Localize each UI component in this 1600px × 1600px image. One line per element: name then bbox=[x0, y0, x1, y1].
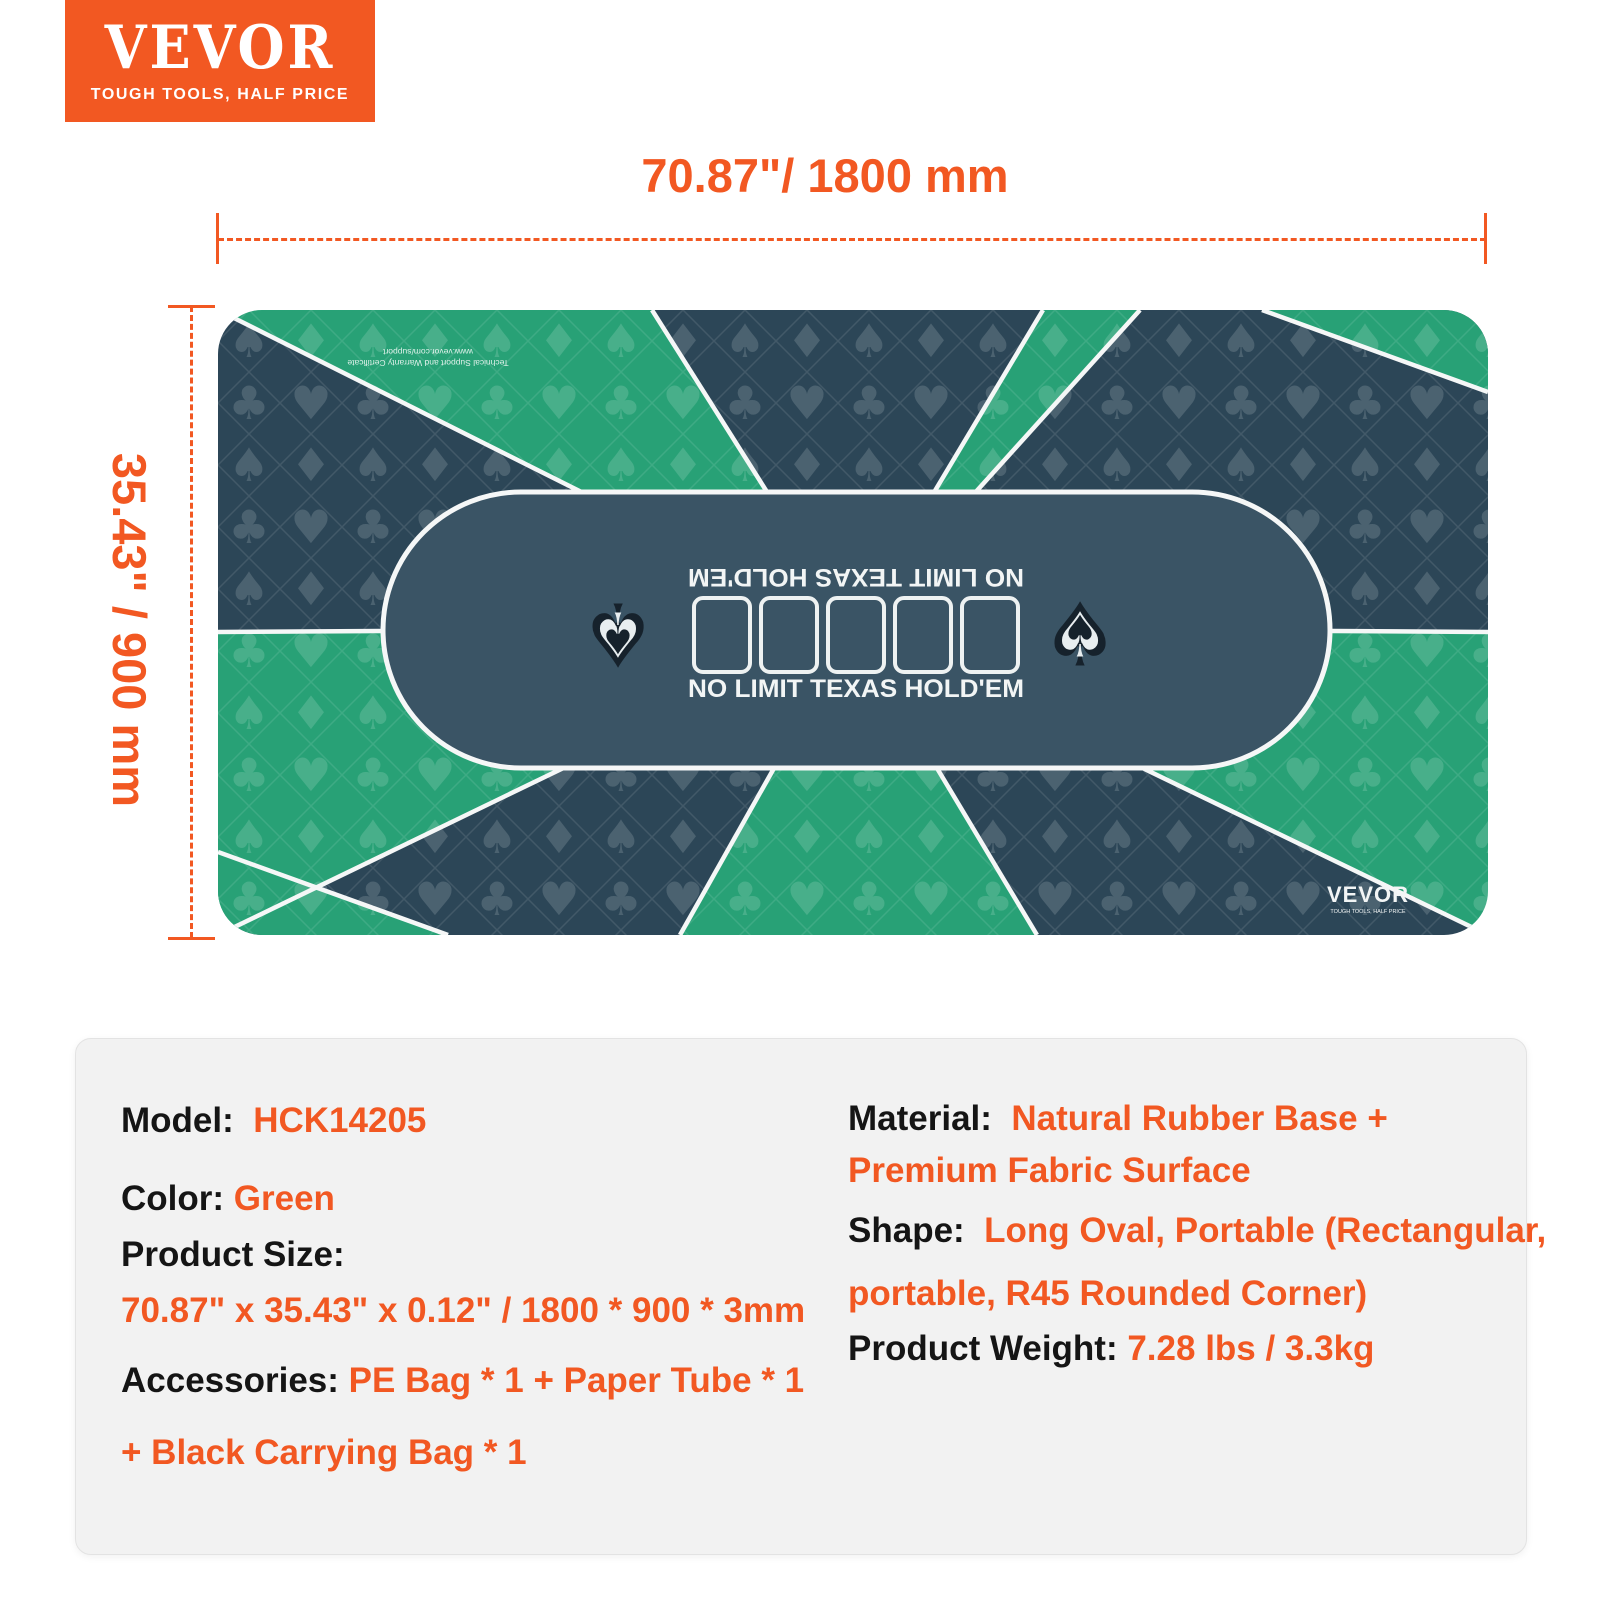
spec-material: Material: Natural Rubber Base + bbox=[848, 1099, 1388, 1139]
spec-size-value: 70.87" x 35.43" x 0.12" / 1800 * 900 * 3… bbox=[121, 1291, 805, 1331]
spec-accessories-cont: + Black Carrying Bag * 1 bbox=[121, 1433, 527, 1473]
height-dimension-label: 35.43" / 900 mm bbox=[97, 393, 157, 867]
vevor-logo-box: VEVOR TOUGH TOOLS, HALF PRICE bbox=[65, 0, 375, 122]
spec-shape-cont: portable, R45 Rounded Corner) bbox=[848, 1274, 1367, 1314]
spec-weight: Product Weight: 7.28 lbs / 3.3kg bbox=[848, 1329, 1374, 1369]
spec-panel: Model: HCK14205 Color: Green Product Siz… bbox=[75, 1038, 1527, 1555]
support-note-line1: Technical Support and Warranty Certifica… bbox=[347, 358, 509, 368]
height-dimension-tick-bottom bbox=[168, 937, 215, 940]
height-dimension-tick-top bbox=[168, 305, 215, 308]
spec-model: Model: HCK14205 bbox=[121, 1101, 426, 1141]
vevor-logo-tagline: TOUGH TOOLS, HALF PRICE bbox=[91, 86, 349, 104]
mat-vevor-logo: VEVOR bbox=[1327, 882, 1409, 907]
oval-text-top-inverted: NO LIMIT TEXAS HOLD'EM bbox=[688, 563, 1024, 591]
mat-vevor-tagline: TOUGH TOOLS, HALF PRICE bbox=[1330, 909, 1406, 915]
center-oval bbox=[383, 492, 1330, 768]
height-dimension-line bbox=[190, 306, 193, 938]
spec-size-label: Product Size: bbox=[121, 1235, 345, 1275]
support-note-line2: www.vevor.com/support bbox=[382, 347, 473, 357]
spec-shape: Shape: Long Oval, Portable (Rectangular, bbox=[848, 1211, 1546, 1251]
width-dimension-label: 70.87"/ 1800 mm bbox=[425, 148, 1225, 203]
poker-mat-image: ♠ ♦ ♣ ♥ bbox=[218, 310, 1488, 935]
width-dimension-tick-right bbox=[1484, 213, 1487, 264]
right-spade-icon: ♠ ♠ ♠ bbox=[1041, 584, 1120, 687]
spec-color: Color: Green bbox=[121, 1179, 335, 1219]
width-dimension-line bbox=[218, 238, 1486, 241]
vevor-logo-text: VEVOR bbox=[105, 18, 336, 78]
spec-accessories: Accessories: PE Bag * 1 + Paper Tube * 1 bbox=[121, 1361, 804, 1401]
svg-text:♠: ♠ bbox=[600, 615, 636, 661]
oval-text-bottom: NO LIMIT TEXAS HOLD'EM bbox=[688, 675, 1024, 703]
spec-material-cont: Premium Fabric Surface bbox=[848, 1151, 1251, 1191]
svg-text:♠: ♠ bbox=[1062, 608, 1098, 654]
width-dimension-tick-left bbox=[216, 213, 219, 264]
left-spade-icon: ♠ ♠ ♠ bbox=[579, 583, 658, 686]
